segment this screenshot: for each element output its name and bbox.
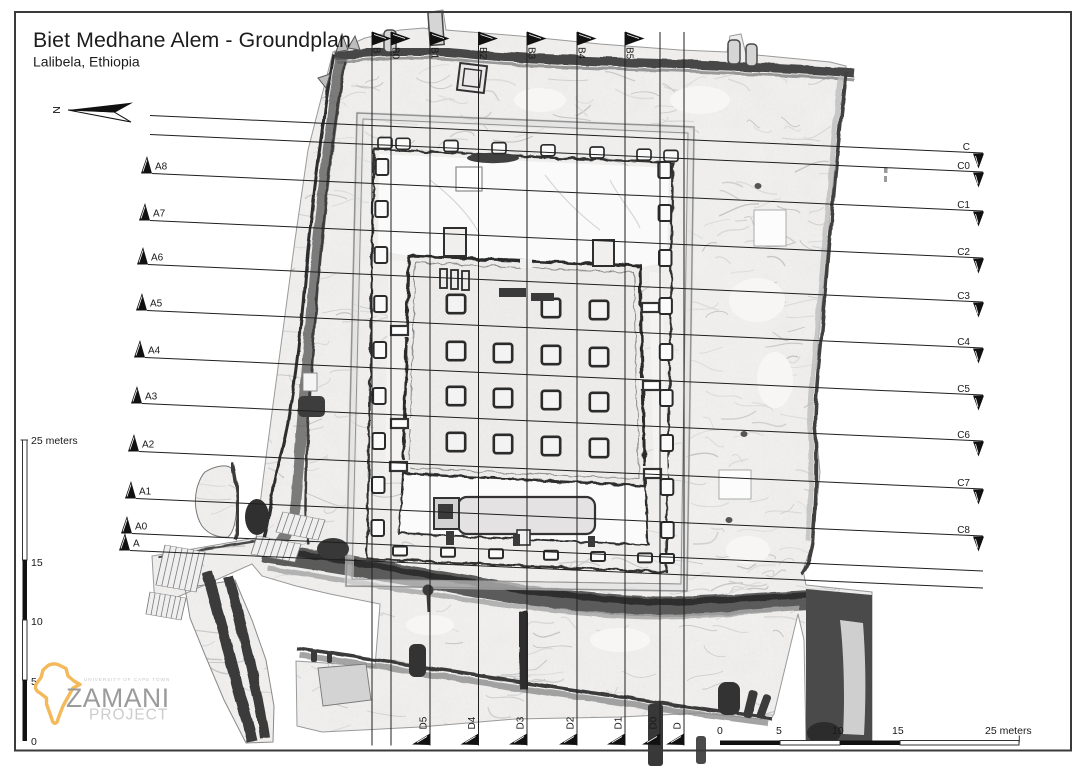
svg-text:D3: D3 — [516, 716, 527, 729]
svg-text:A8: A8 — [155, 162, 168, 173]
svg-text:C3: C3 — [957, 291, 970, 302]
svg-text:A2: A2 — [142, 440, 155, 451]
svg-text:B1: B1 — [429, 47, 440, 60]
svg-text:D5: D5 — [419, 716, 430, 729]
svg-text:D4: D4 — [467, 716, 478, 729]
svg-text:B: B — [371, 47, 382, 54]
svg-text:D1: D1 — [614, 716, 625, 729]
svg-text:B5: B5 — [624, 47, 635, 60]
svg-text:C0: C0 — [957, 161, 970, 172]
svg-text:Lalibela, Ethiopia: Lalibela, Ethiopia — [33, 54, 140, 70]
svg-text:PROJECT: PROJECT — [89, 707, 168, 724]
svg-text:10: 10 — [832, 725, 844, 737]
svg-text:C7: C7 — [957, 478, 970, 489]
svg-text:A: A — [133, 539, 140, 550]
svg-text:C6: C6 — [957, 430, 970, 441]
svg-text:Biet Medhane Alem - Groundplan: Biet Medhane Alem - Groundplan — [33, 28, 351, 52]
svg-text:D: D — [673, 722, 684, 729]
svg-text:A0: A0 — [135, 522, 148, 533]
svg-text:B4: B4 — [576, 47, 587, 60]
svg-text:A5: A5 — [150, 299, 163, 310]
svg-text:C5: C5 — [957, 384, 970, 395]
svg-text:C: C — [963, 142, 970, 153]
svg-text:25 meters: 25 meters — [31, 435, 78, 447]
svg-text:B0: B0 — [390, 47, 401, 60]
svg-text:0: 0 — [717, 725, 723, 737]
svg-text:B2: B2 — [477, 47, 488, 60]
svg-text:A7: A7 — [153, 209, 166, 220]
svg-text:C8: C8 — [957, 525, 970, 536]
svg-text:C2: C2 — [957, 247, 970, 258]
svg-text:15: 15 — [892, 725, 904, 737]
svg-text:5: 5 — [776, 725, 782, 737]
svg-text:25 meters: 25 meters — [985, 725, 1032, 737]
svg-text:15: 15 — [31, 557, 43, 569]
svg-text:D2: D2 — [566, 716, 577, 729]
svg-text:C4: C4 — [957, 337, 970, 348]
svg-text:A6: A6 — [151, 253, 164, 264]
svg-text:C1: C1 — [957, 200, 970, 211]
svg-text:10: 10 — [31, 616, 43, 628]
svg-text:N: N — [51, 106, 63, 114]
svg-text:B3: B3 — [526, 47, 537, 60]
svg-text:D0: D0 — [649, 716, 660, 729]
svg-text:0: 0 — [31, 736, 37, 748]
svg-text:A1: A1 — [139, 487, 152, 498]
svg-text:UNIVERSITY OF CAPE TOWN: UNIVERSITY OF CAPE TOWN — [84, 677, 170, 682]
svg-text:A3: A3 — [145, 392, 158, 403]
svg-text:A4: A4 — [148, 346, 161, 357]
